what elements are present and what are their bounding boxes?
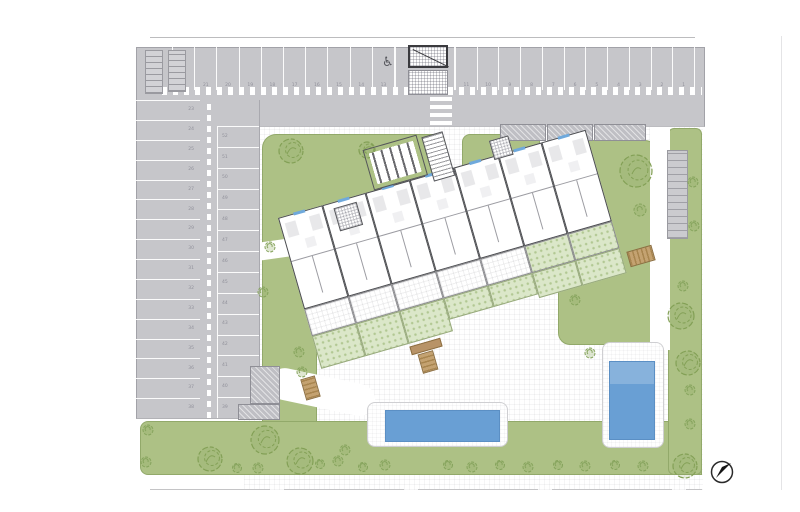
- parking-stall-number: 35: [188, 347, 194, 352]
- parking-stall: 42: [218, 335, 259, 356]
- parking-stall: 11: [455, 47, 477, 90]
- bike-rack: [145, 50, 163, 94]
- parking-stall: 26: [136, 160, 200, 180]
- parking-stall-number: 41: [222, 364, 228, 369]
- parking-stall-number: 46: [222, 260, 228, 265]
- site-plan-page: 22212019181716151413 1110987654321 23242…: [0, 0, 800, 512]
- compass: [706, 456, 740, 490]
- parking-stall-number: 45: [222, 281, 228, 286]
- parking-stall: 3: [629, 47, 651, 90]
- parking-stall: 17: [283, 47, 305, 90]
- plot-boundary-bottom: [150, 489, 702, 490]
- pergola: [594, 124, 646, 141]
- swimming-pool: [385, 410, 500, 442]
- page-edge-line: [781, 36, 782, 490]
- parking-stall: 47: [218, 230, 259, 251]
- parking-stall: 21: [194, 47, 216, 90]
- parking-stall-number: 49: [222, 197, 228, 202]
- ramp-structure: [408, 45, 448, 68]
- parking-stall: 36: [136, 358, 200, 378]
- parking-stall: 7: [542, 47, 564, 90]
- parking-stall-number: 42: [222, 343, 228, 348]
- parking-stall: 4: [607, 47, 629, 90]
- parking-stall-number: 29: [188, 227, 194, 232]
- parking-stall-number: 52: [222, 135, 228, 140]
- parking-stall: 51: [218, 147, 259, 168]
- parking-stall: 30: [136, 239, 200, 259]
- parking-stall-number: 33: [188, 307, 194, 312]
- parking-stall: 5: [585, 47, 607, 90]
- parking-stall: 16: [305, 47, 327, 90]
- lane-dashed-line: [207, 100, 211, 418]
- ramp-arrow: [413, 49, 449, 67]
- parking-stall: 29: [136, 219, 200, 239]
- parking-stall: 10: [477, 47, 499, 90]
- parking-stall: 44: [218, 293, 259, 314]
- parking-stall: 33: [136, 299, 200, 319]
- parking-stall: 27: [136, 180, 200, 200]
- parking-stall-number: 26: [188, 168, 194, 173]
- parking-stall-number: 28: [188, 208, 194, 213]
- parking-stall-number: 47: [222, 239, 228, 244]
- ramp-hatch-strip: [408, 70, 448, 95]
- parking-stall: 32: [136, 279, 200, 299]
- parking-row-north-east: 1110987654321: [455, 47, 695, 90]
- parking-stall: 43: [218, 314, 259, 335]
- parking-stall: 1: [672, 47, 695, 90]
- parking-stall-number: 50: [222, 176, 228, 181]
- parking-stall: 38: [136, 398, 200, 418]
- parking-stall: 28: [136, 199, 200, 219]
- parking-stall-number: 43: [222, 322, 228, 327]
- parking-stall-number: 51: [222, 156, 228, 161]
- parking-stall-number: 44: [222, 302, 228, 307]
- parking-stall: 15: [327, 47, 349, 90]
- parking-stall: 46: [218, 251, 259, 272]
- wheelchair-icon: ♿: [382, 55, 394, 70]
- parking-column-outer: 23242526272829303132333435363738: [136, 100, 200, 418]
- sw-ramp: [250, 366, 280, 404]
- parking-stall: 2: [651, 47, 673, 90]
- parking-stall: 14: [350, 47, 372, 90]
- parking-stall: 37: [136, 378, 200, 398]
- parking-stall-number: 40: [222, 385, 228, 390]
- parking-stall: 31: [136, 259, 200, 279]
- parking-stall: 48: [218, 209, 259, 230]
- parking-stall-number: 25: [188, 148, 194, 153]
- parking-stall-number: 48: [222, 218, 228, 223]
- parking-stall: 20: [216, 47, 238, 90]
- parking-stall-number: 31: [188, 267, 194, 272]
- parking-stall: 19: [239, 47, 261, 90]
- parking-stall-number: 36: [188, 367, 194, 372]
- storage-strip: [667, 150, 688, 239]
- parking-stall: 25: [136, 140, 200, 160]
- parking-stall-number: 34: [188, 327, 194, 332]
- parking-stall: 52: [218, 126, 259, 147]
- parking-stall: 34: [136, 319, 200, 339]
- parking-stall: 24: [136, 120, 200, 140]
- bike-rack: [168, 50, 186, 92]
- parking-stall: 6: [564, 47, 586, 90]
- parking-stall: 23: [136, 100, 200, 120]
- parking-stall-number: 38: [188, 406, 194, 411]
- parking-stall-number: 30: [188, 247, 194, 252]
- parking-stall: 9: [498, 47, 520, 90]
- parking-stall-number: 32: [188, 287, 194, 292]
- parking-stall: 49: [218, 189, 259, 210]
- parking-stall: 50: [218, 168, 259, 189]
- swimming-pool: [609, 361, 655, 440]
- parking-stall-number: 23: [188, 108, 194, 113]
- crosswalk: [430, 95, 452, 125]
- parking-row-north-west: 22212019181716151413: [172, 47, 395, 90]
- sw-ramp: [238, 404, 280, 420]
- parking-stall: 18: [261, 47, 283, 90]
- parking-stall-number: 37: [188, 386, 194, 391]
- plot-boundary-top: [150, 37, 695, 38]
- parking-stall: 45: [218, 272, 259, 293]
- parking-stall-number: 27: [188, 188, 194, 193]
- parking-stall-number: 24: [188, 128, 194, 133]
- parking-stall-number: 39: [222, 406, 228, 411]
- parking-stall: 8: [520, 47, 542, 90]
- parking-stall: 35: [136, 339, 200, 359]
